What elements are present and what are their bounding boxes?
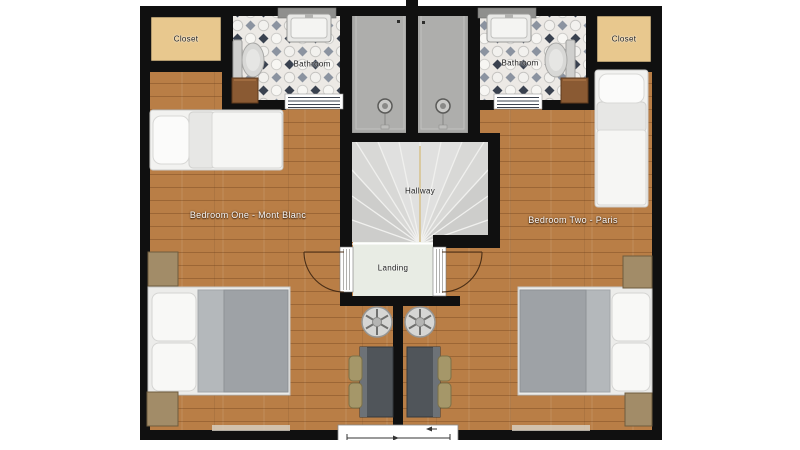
door-jamb-left (340, 247, 353, 292)
room-label-closet-left: Closet (174, 35, 198, 44)
shower-head-left (378, 20, 400, 129)
single-bed-bedroom-one (150, 110, 283, 170)
desk-left (349, 347, 393, 417)
double-bed-bedroom-one (148, 287, 290, 395)
door-swing-left (304, 252, 344, 292)
single-bed-bedroom-two (595, 70, 648, 207)
sink-right (478, 8, 536, 42)
door-jamb-right (433, 247, 446, 296)
stool-right (405, 307, 435, 337)
toilet-left (233, 40, 264, 80)
floor-plan-canvas: Closet Closet Bathroom Bathroom Hallway … (0, 0, 800, 450)
room-label-bedroom-two: Bedroom Two - Paris (528, 215, 618, 225)
room-label-bedroom-one: Bedroom One - Mont Blanc (190, 210, 306, 220)
door-swing-right (442, 252, 482, 292)
room-label-landing: Landing (378, 264, 409, 273)
sink-left (278, 8, 336, 42)
floor-plan: Closet Closet Bathroom Bathroom Hallway … (140, 6, 662, 440)
stool-left (362, 307, 392, 337)
bathroom-cabinet-right (561, 78, 588, 103)
window-bottom (338, 425, 458, 440)
room-label-bathroom-left: Bathroom (293, 60, 330, 69)
shower-head-right (422, 21, 450, 129)
double-bed-bedroom-two (518, 287, 652, 395)
desk-right (407, 347, 451, 417)
room-label-bathroom-right: Bathroom (501, 59, 538, 68)
room-label-closet-right: Closet (612, 35, 636, 44)
toilet-right (545, 40, 575, 80)
sliding-door-threshold-left (285, 94, 343, 109)
sliding-door-threshold-right (494, 94, 542, 109)
room-label-hallway: Hallway (405, 187, 435, 196)
bathroom-cabinet-left (232, 78, 258, 103)
